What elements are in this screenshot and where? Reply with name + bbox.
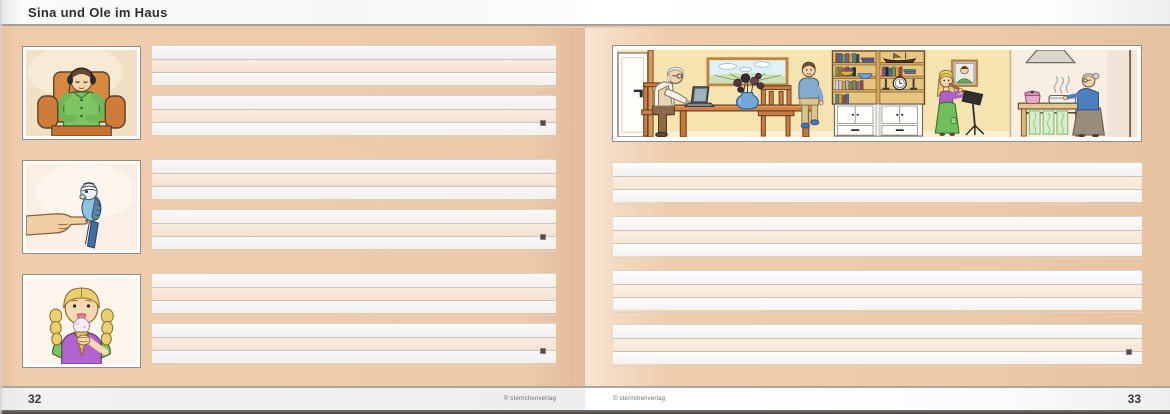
writing-line: [152, 159, 556, 202]
writing-line: [152, 273, 556, 316]
writing-line: [613, 270, 1142, 313]
page-title: Sina und Ole im Haus: [28, 5, 168, 20]
page-left: Sina und Ole im Haus: [0, 0, 585, 414]
illustration-headphones: [22, 46, 141, 140]
page-number: 33: [1128, 392, 1141, 406]
page-footer-right: © sternchenverlag 33: [585, 386, 1170, 410]
icecream-girl-drawing: [26, 278, 137, 364]
line-end-marker: [541, 121, 545, 125]
bookshelf: [833, 51, 925, 136]
writing-line: [152, 323, 556, 366]
portrait-photo: [952, 61, 977, 86]
writing-line: [613, 216, 1142, 259]
page-number: 32: [28, 392, 41, 406]
page-left-edge: [0, 0, 3, 414]
cooking-pot: [1025, 91, 1040, 104]
headphones-armchair-drawing: [26, 50, 137, 136]
writing-line: [152, 95, 556, 138]
illustration-budgie: [22, 160, 141, 254]
page-right: © sternchenverlag 33: [585, 0, 1170, 414]
copyright: © sternchenverlag: [504, 396, 556, 402]
page-header-left: Sina und Ole im Haus: [0, 0, 585, 26]
book-bottom-edge: [0, 410, 1170, 414]
page-left-content: [0, 28, 585, 386]
line-end-marker: [1127, 350, 1131, 354]
writing-line: [152, 45, 556, 88]
copyright: © sternchenverlag: [613, 396, 665, 402]
writing-line: [152, 209, 556, 252]
writing-line: [613, 162, 1142, 205]
page-footer-left: 32 © sternchenverlag: [0, 386, 585, 410]
line-end-marker: [541, 235, 545, 239]
page-header-right: [585, 0, 1170, 26]
illustration-livingroom: [612, 45, 1142, 142]
book-spread: Sina und Ole im Haus: [0, 0, 1170, 414]
budgie-finger-drawing: [26, 164, 137, 250]
line-end-marker: [541, 349, 545, 353]
writing-line: [613, 324, 1142, 367]
livingroom-drawing: [617, 50, 1137, 137]
page-right-content: [585, 28, 1170, 386]
illustration-icecream: [22, 274, 141, 368]
